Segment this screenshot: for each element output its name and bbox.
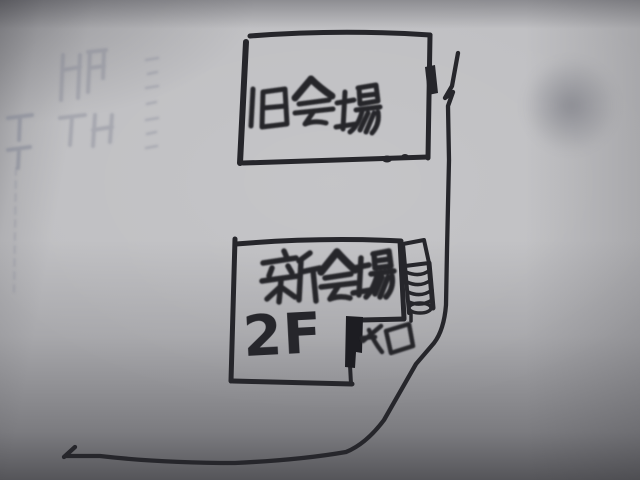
sketch-map-drawing [0,0,640,480]
stairs [403,240,433,321]
new-venue-label [262,251,394,302]
floor-label: 2F [241,301,324,370]
bleed-through-marks [8,50,158,292]
bleed-through-small-text-column [146,58,158,148]
old-venue-label [251,79,380,133]
entrance-label [362,324,413,353]
bleed-through-edge-text-column [14,168,16,292]
entrance-door-mark [345,316,363,368]
photo-sketch-map: 2F [0,0,640,480]
